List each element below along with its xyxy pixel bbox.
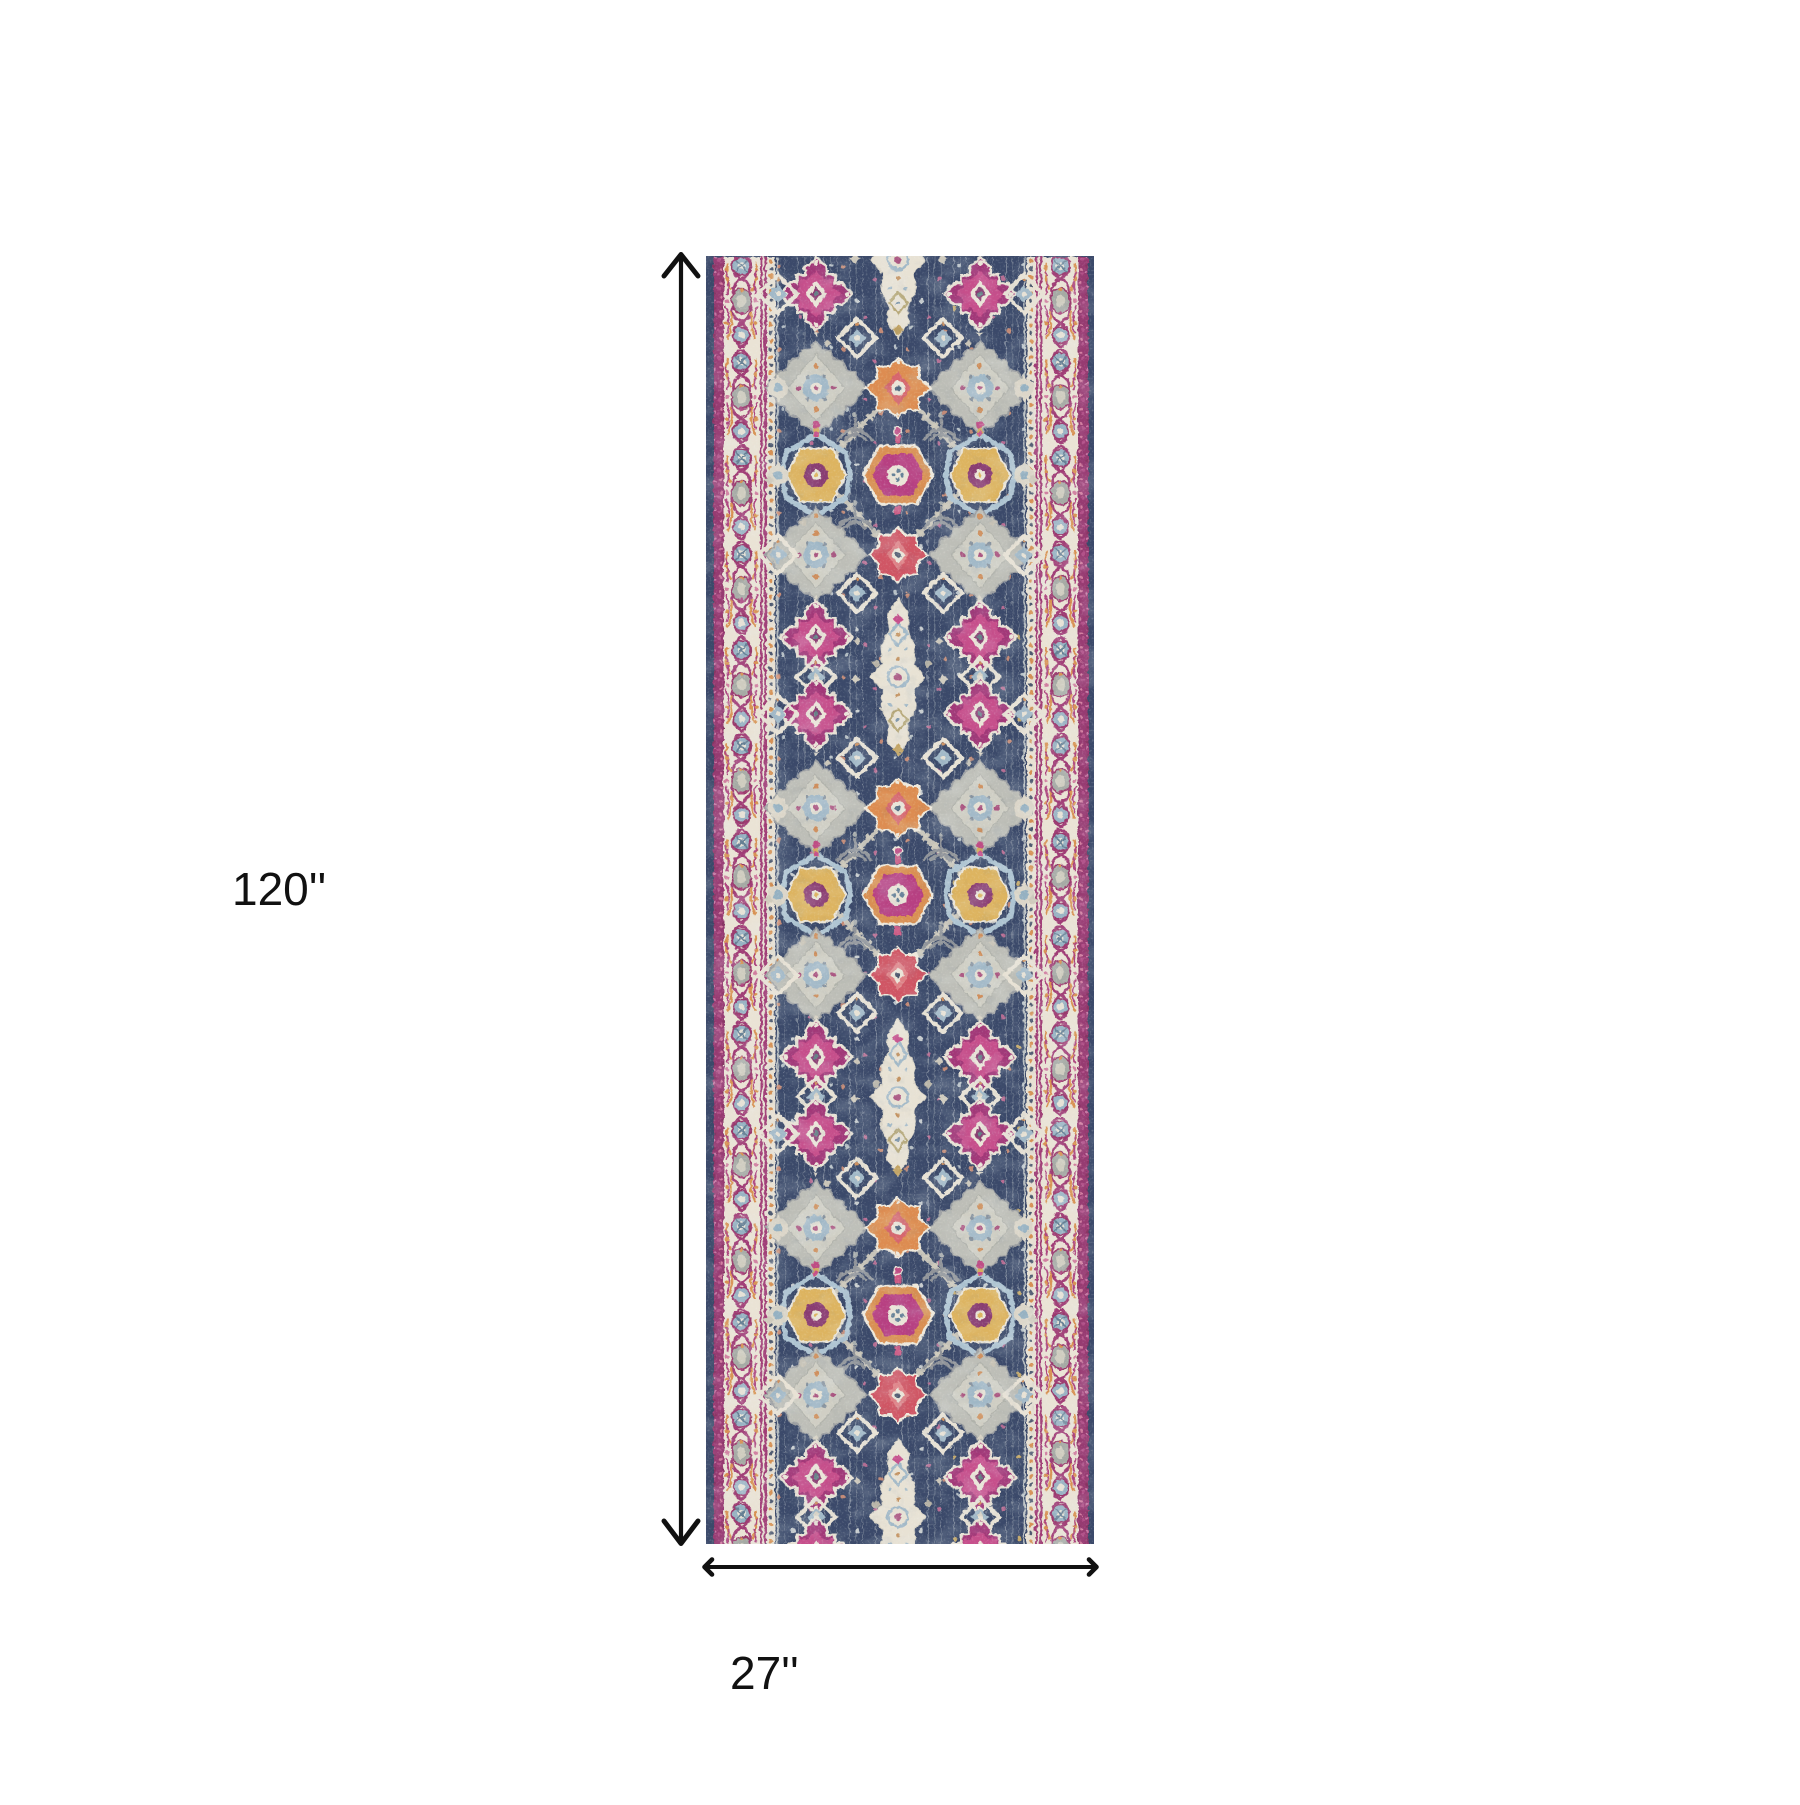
svg-text:27'': 27'' bbox=[730, 1647, 799, 1699]
svg-text:120'': 120'' bbox=[232, 863, 326, 915]
